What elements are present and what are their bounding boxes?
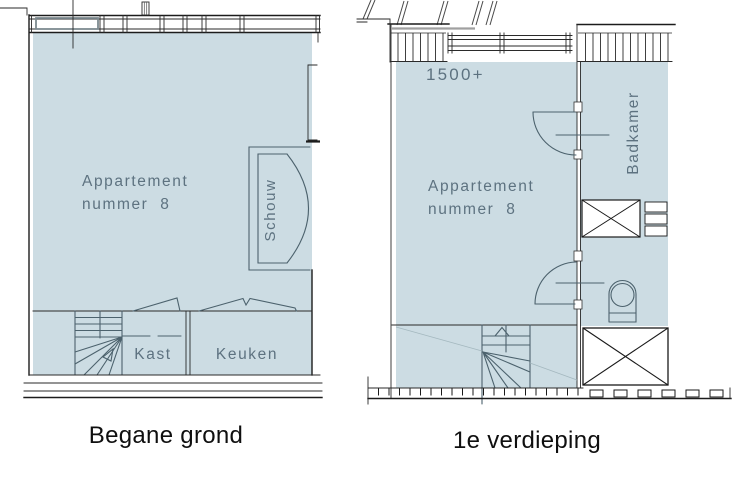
radiator — [645, 202, 667, 236]
keuken-label: Keuken — [216, 346, 278, 363]
caption-1e-verdieping: 1e verdieping — [453, 427, 601, 454]
apartment-label-line1: Appartement — [82, 173, 188, 190]
apartment-label-line2: nummer 8 — [82, 196, 170, 213]
dormer-window — [448, 33, 572, 53]
top-wall-hatched-left — [388, 24, 475, 62]
bathroom-fill — [580, 62, 668, 326]
roof-rafters — [363, 0, 497, 25]
schouw-label: Schouw — [262, 179, 279, 242]
height-marker-label: 1500+ — [426, 65, 485, 84]
plan-eerste-verdieping: 1500+ Appartement nummer 8 Badkamer 1e v… — [357, 0, 731, 454]
entrance-door-leaf — [36, 18, 98, 29]
kast-label: Kast — [134, 346, 171, 363]
floorplan-page: Appartement nummer 8 Schouw Kast Keuken … — [0, 0, 732, 484]
apartment-label-line1: Appartement — [428, 178, 534, 195]
floorplan-drawing: Appartement nummer 8 Schouw Kast Keuken … — [0, 0, 732, 484]
top-wall-hatched-right — [577, 25, 675, 63]
caption-begane-grond: Begane grond — [89, 422, 243, 449]
chimney-stub — [142, 2, 149, 15]
neighbour-wall — [0, 8, 27, 15]
neighbour-step — [357, 19, 390, 24]
shower-tray — [582, 200, 640, 237]
skylight-cross — [583, 328, 668, 385]
badkamer-label: Badkamer — [625, 91, 642, 174]
front-window-band — [30, 16, 320, 33]
plan-begane-grond: Appartement nummer 8 Schouw Kast Keuken … — [0, 0, 322, 449]
facade-lines — [24, 375, 322, 398]
apartment-room-fill — [396, 62, 577, 388]
apartment-label-line2: nummer 8 — [428, 201, 516, 218]
